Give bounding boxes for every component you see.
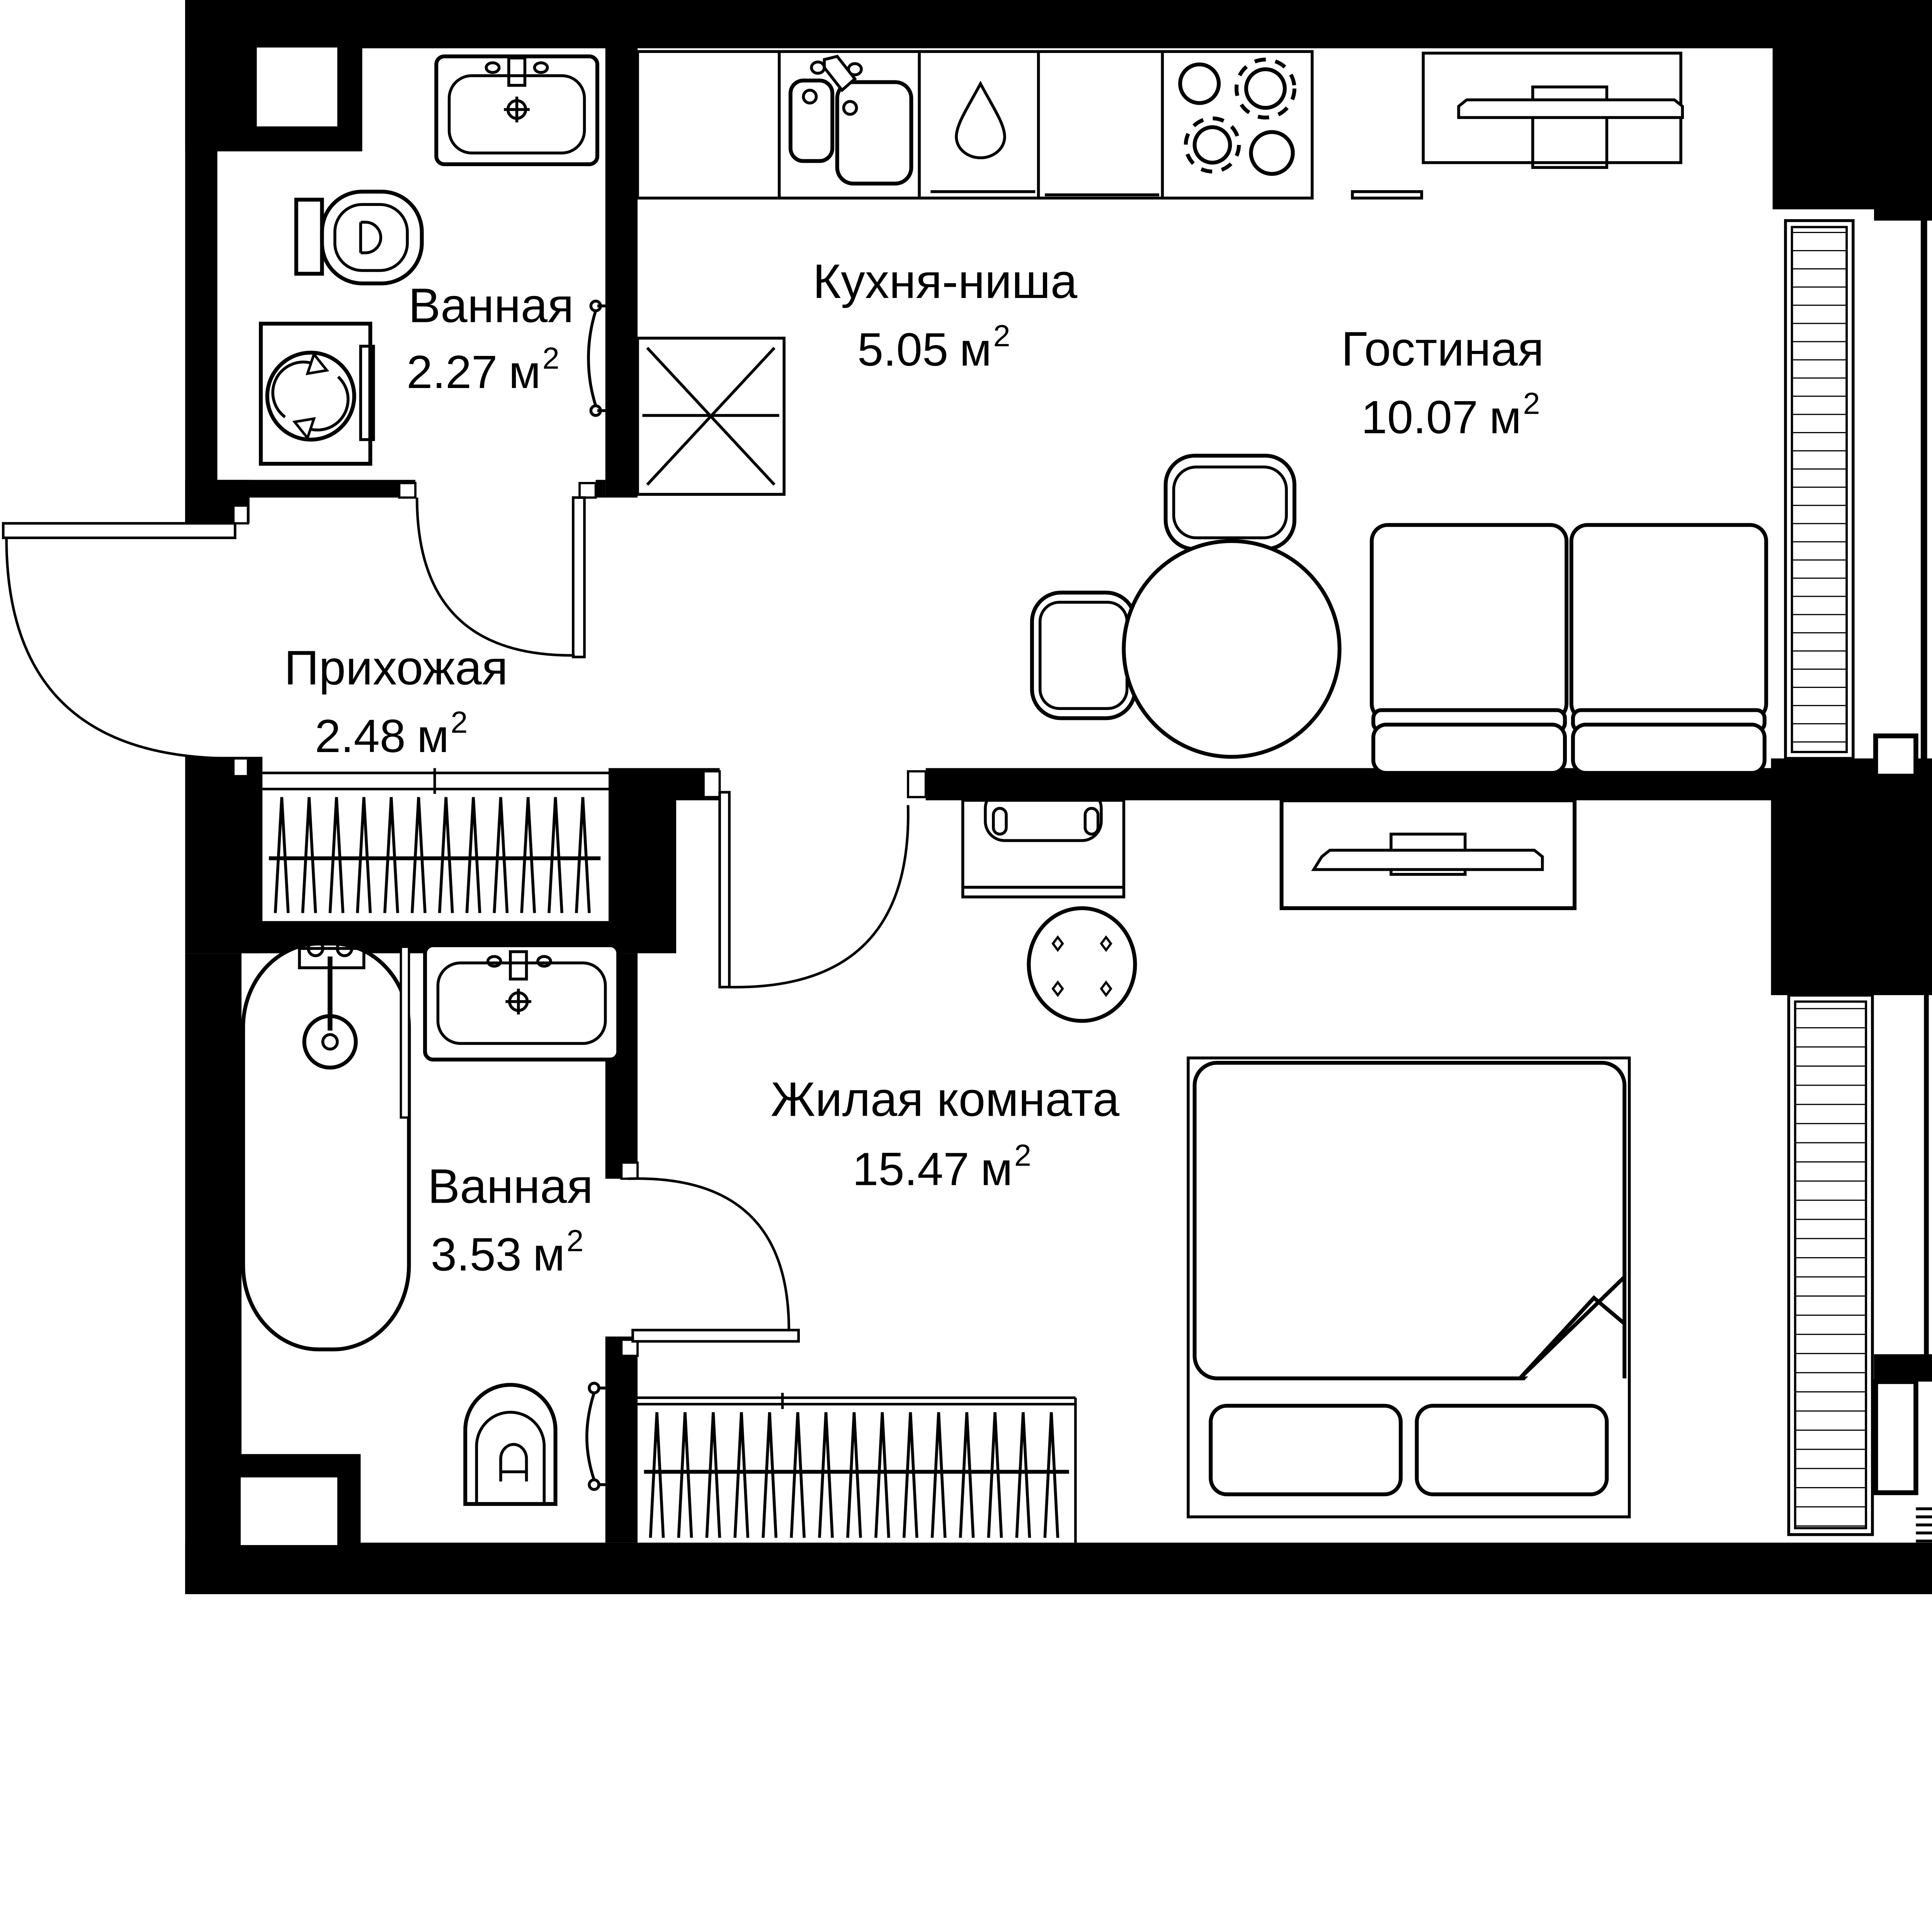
bathroom1-door-icon: [399, 483, 595, 657]
towel-radiator-icon: [588, 301, 605, 415]
room-area: 2.27м2: [406, 341, 560, 398]
room-area: 2.48м2: [315, 705, 468, 762]
bedroom-door-arc: [730, 805, 908, 987]
tv-console-icon: [1423, 53, 1682, 168]
wall-bath1-right: [605, 48, 638, 498]
wall-left-lower: [185, 953, 241, 1454]
room-area: 15.47м2: [852, 1138, 1031, 1195]
wall-bath2-right-lower: [605, 1336, 638, 1542]
sofa-icon: [1372, 525, 1766, 773]
sink-icon: [425, 945, 618, 1060]
towel-radiator-icon: [587, 1383, 605, 1489]
bedroom-door-leaf: [720, 792, 730, 987]
wardrobe-icon: [638, 1393, 1075, 1543]
chair-icon: [1032, 592, 1135, 718]
room-label: Ванная: [428, 1160, 593, 1213]
balcony-slab: [1876, 1382, 1916, 1493]
toilet-icon: [296, 192, 422, 283]
toilet-icon: [465, 1385, 555, 1504]
washing-machine-icon: [261, 324, 374, 464]
room-labels: Ванная 2.27м2 Кухня-ниша 5.05м2 Гостиная…: [284, 255, 1544, 1281]
entry-door-leaf: [3, 523, 235, 538]
bedroom-door-icon: [704, 771, 926, 987]
tv-icon: [1314, 850, 1543, 870]
sink-icon: [436, 56, 597, 164]
bathroom1-door-leaf: [573, 498, 584, 657]
wardrobe-icon: [262, 768, 609, 915]
room-label: Жилая комната: [770, 1073, 1119, 1127]
wall-step-top-right: [1874, 208, 1932, 221]
wall-left-upper: [185, 0, 217, 523]
room-label: Гостиная: [1341, 322, 1544, 376]
facade-edge-lower: [1924, 981, 1929, 1358]
vent-shaft-icon: [254, 45, 340, 129]
pillow: [1211, 1406, 1401, 1494]
bathroom1-door-arc: [417, 498, 575, 655]
tv-table-icon: [1282, 800, 1575, 908]
entry-door-icon: [3, 505, 248, 776]
bathroom2-door-arc: [628, 1179, 789, 1330]
wall-bath1-bottom: [185, 480, 415, 498]
water-drop-icon: [956, 84, 1005, 158]
facade-notch: [1876, 736, 1916, 776]
wall-bottom: [185, 1543, 1932, 1594]
desk-icon: [963, 800, 1124, 897]
fridge-unit-icon: [638, 338, 784, 494]
vent-shaft-icon: [238, 1475, 340, 1548]
bathroom2-door-leaf: [633, 1330, 799, 1341]
wall-right-mid-block: [1771, 759, 1932, 996]
room-label: Кухня-ниша: [813, 255, 1077, 308]
room-area: 3.53м2: [431, 1224, 584, 1281]
kitchen-sink-icon: [791, 56, 911, 184]
wall-bath1-jamb-piece: [596, 480, 605, 498]
room-label: Прихожая: [284, 641, 508, 695]
bed-icon: [1188, 1058, 1629, 1517]
bathtub-icon: [243, 941, 409, 1349]
wall-right-stub: [1874, 1354, 1932, 1382]
shower-screen: [401, 947, 409, 1118]
chair-icon: [1166, 456, 1294, 549]
window-bedroom-icon: [1789, 995, 1872, 1535]
room-area: 5.05м2: [857, 318, 1010, 376]
kitchen-counter-icon: [638, 51, 1422, 198]
pillow: [1417, 1406, 1607, 1494]
facade-edge-upper: [1921, 221, 1927, 759]
stool-icon: [1029, 908, 1135, 1021]
window-living-icon: [1786, 221, 1853, 759]
room-area: 10.07м2: [1361, 386, 1540, 443]
floor-plan: Ванная 2.27м2 Кухня-ниша 5.05м2 Гостиная…: [0, 0, 1932, 1594]
tv-icon: [1459, 100, 1682, 117]
stove-icon: [1180, 60, 1294, 174]
wall-corner-top-right: [1773, 0, 1932, 209]
bathroom2-door-icon: [621, 1162, 798, 1356]
dining-table-icon: [1124, 541, 1339, 757]
entry-door-arc: [7, 538, 234, 759]
room-label: Ванная: [408, 279, 574, 332]
floor-plan-canvas: Ванная 2.27м2 Кухня-ниша 5.05м2 Гостиная…: [0, 0, 1932, 1594]
balcony-ladder-icon: [1916, 1509, 1932, 1541]
wall-top: [185, 0, 1772, 48]
